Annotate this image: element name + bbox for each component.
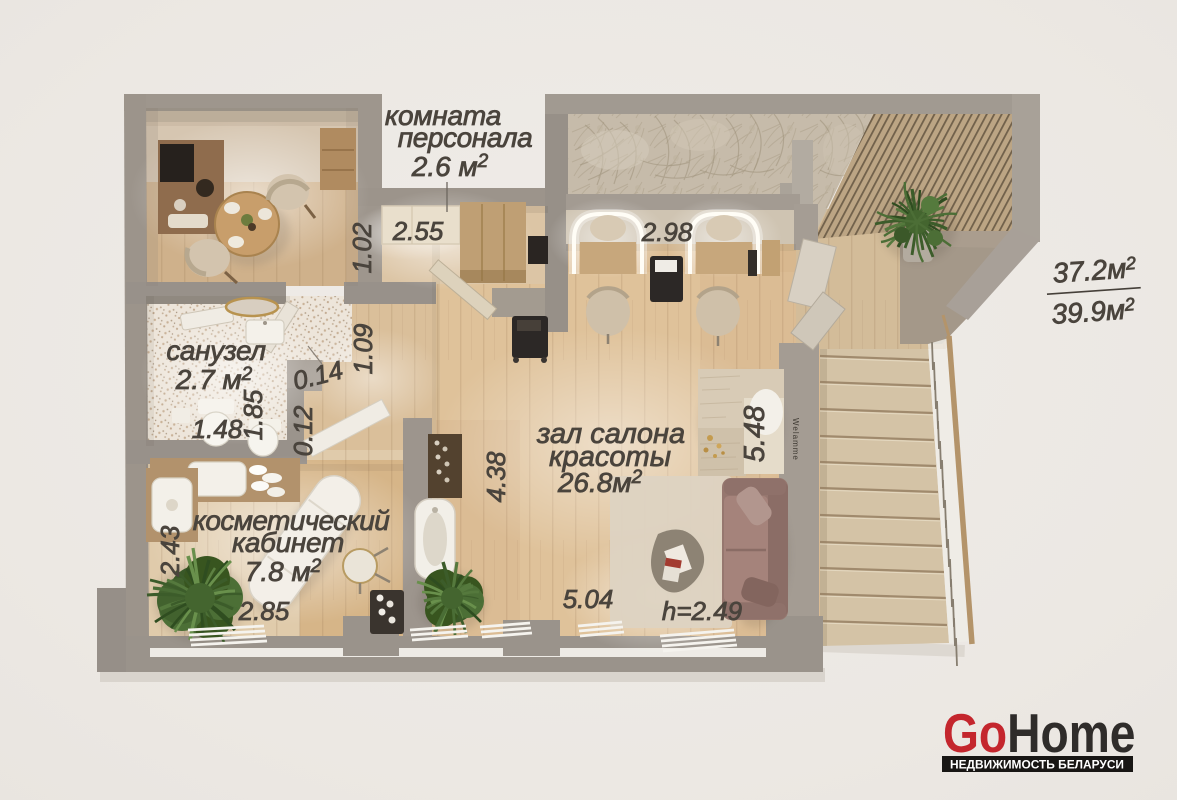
svg-text:7.8 м2: 7.8 м2 [245,556,322,587]
svg-text:5.48: 5.48 [739,406,771,462]
svg-text:2.98: 2.98 [641,217,693,247]
svg-text:персонала: персонала [398,122,533,153]
svg-text:0.12: 0.12 [288,405,318,456]
svg-text:Welamme: Welamme [791,418,800,461]
svg-text:4.38: 4.38 [481,451,511,502]
svg-text:2.55: 2.55 [392,216,444,246]
svg-text:1.02: 1.02 [347,222,377,273]
svg-text:2.6 м2: 2.6 м2 [411,151,489,182]
svg-text:1.85: 1.85 [238,389,268,440]
svg-text:1.09: 1.09 [348,324,378,375]
svg-text:1.48: 1.48 [192,414,243,444]
svg-text:37.2м2: 37.2м2 [1052,252,1138,289]
svg-text:кабинет: кабинет [232,527,344,558]
svg-text:НЕДВИЖИМОСТЬ БЕЛАРУСИ: НЕДВИЖИМОСТЬ БЕЛАРУСИ [950,760,1124,772]
svg-text:39.9м2: 39.9м2 [1050,293,1136,330]
svg-text:GoHome: GoHome [943,702,1135,764]
svg-text:h=2.49: h=2.49 [662,596,742,626]
svg-text:2.85: 2.85 [238,596,290,626]
svg-text:санузел: санузел [166,335,266,366]
svg-text:5.04: 5.04 [563,584,614,614]
svg-text:26.8м2: 26.8м2 [557,467,643,498]
svg-text:2.43: 2.43 [155,525,185,577]
